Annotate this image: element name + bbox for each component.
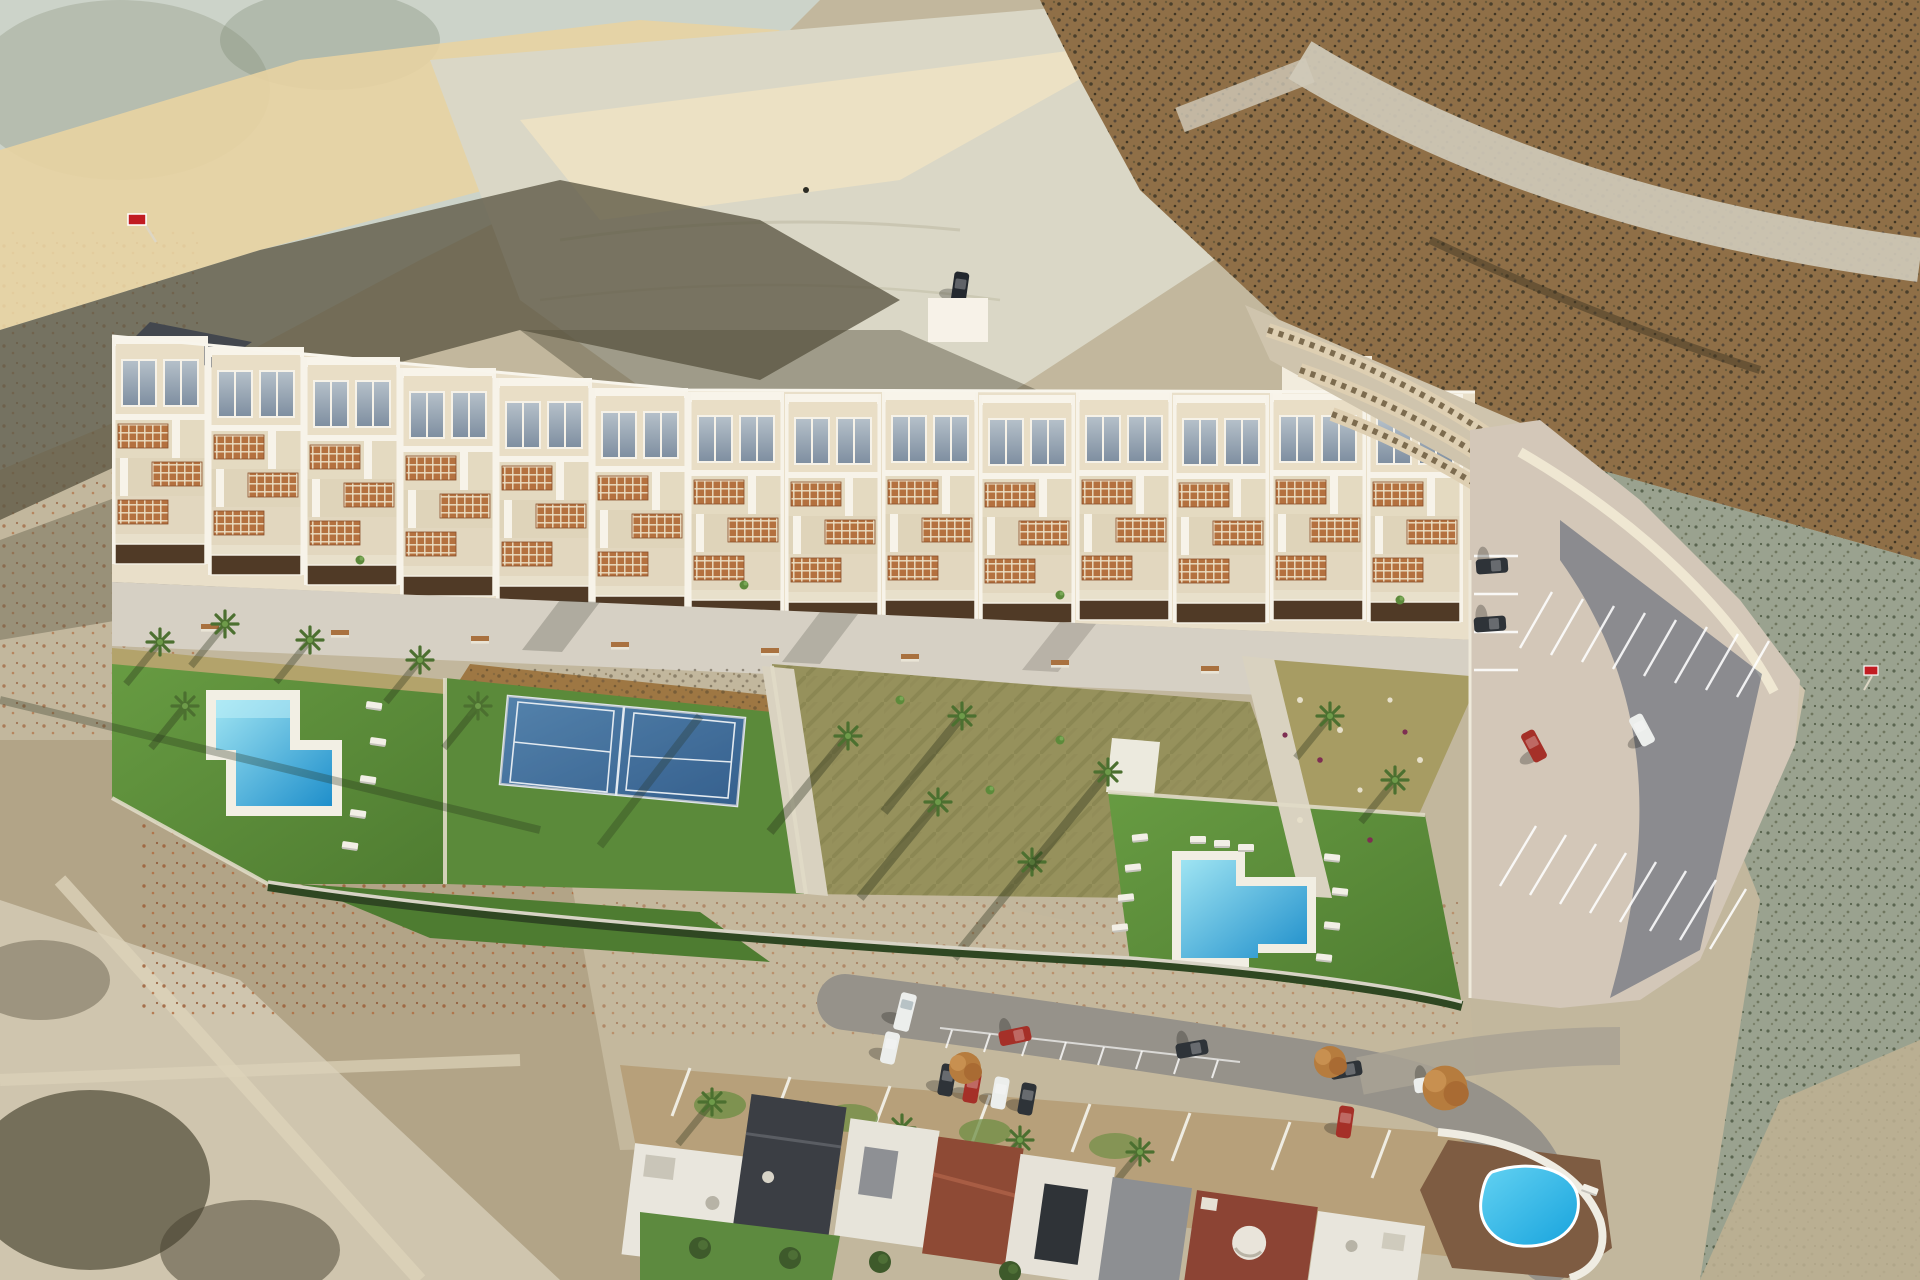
lounger: [1190, 836, 1206, 844]
aerial-scene: [0, 0, 1920, 1280]
lounger: [1324, 921, 1341, 931]
roof-white-with-solar: [1004, 1154, 1115, 1280]
bench: [901, 654, 919, 662]
planter-shrub: [740, 581, 749, 590]
townhouse-unit: [592, 388, 688, 616]
kidney-pool-water: [1481, 1166, 1579, 1246]
townhouse-unit: [208, 347, 304, 575]
lounger: [1324, 853, 1341, 863]
bench: [1201, 666, 1219, 674]
planter-shrub: [1396, 596, 1405, 605]
bench: [1051, 660, 1069, 668]
pool-shallow-glint: [216, 700, 290, 718]
planter-shrub: [356, 556, 365, 565]
roof-charcoal: [733, 1094, 846, 1238]
townhouse-unit: [400, 368, 496, 596]
townhouse-unit: [1076, 392, 1172, 620]
lounger: [1125, 863, 1142, 873]
lounger: [1316, 953, 1333, 963]
bench: [471, 636, 489, 644]
townhouse-unit: [979, 395, 1075, 623]
building-annex-roof: [928, 298, 988, 342]
lounger: [1118, 893, 1135, 903]
lounger: [1332, 887, 1349, 897]
shrub: [986, 786, 995, 795]
tree: [689, 1237, 711, 1259]
bench: [611, 642, 629, 650]
townhouse-unit: [1173, 395, 1269, 623]
bench: [761, 648, 779, 656]
lounger: [1112, 923, 1129, 933]
shrub: [1056, 736, 1065, 745]
tree: [869, 1251, 891, 1273]
planter-shrub: [1056, 591, 1065, 600]
bench: [331, 630, 349, 638]
townhouse-unit: [785, 394, 881, 622]
person-dot: [803, 187, 809, 193]
townhouse-unit: [688, 392, 784, 620]
lounger: [1132, 833, 1149, 843]
townhouse-unit: [882, 392, 978, 620]
roof-white: [834, 1118, 940, 1247]
shrub: [896, 696, 905, 705]
lounger: [1214, 840, 1230, 848]
townhouse-unit: [304, 357, 400, 585]
townhouse-unit: [112, 336, 208, 564]
roof-gray: [1098, 1177, 1192, 1280]
lounger: [1238, 844, 1254, 852]
townhouse-unit: [496, 378, 592, 606]
tree: [779, 1247, 801, 1269]
